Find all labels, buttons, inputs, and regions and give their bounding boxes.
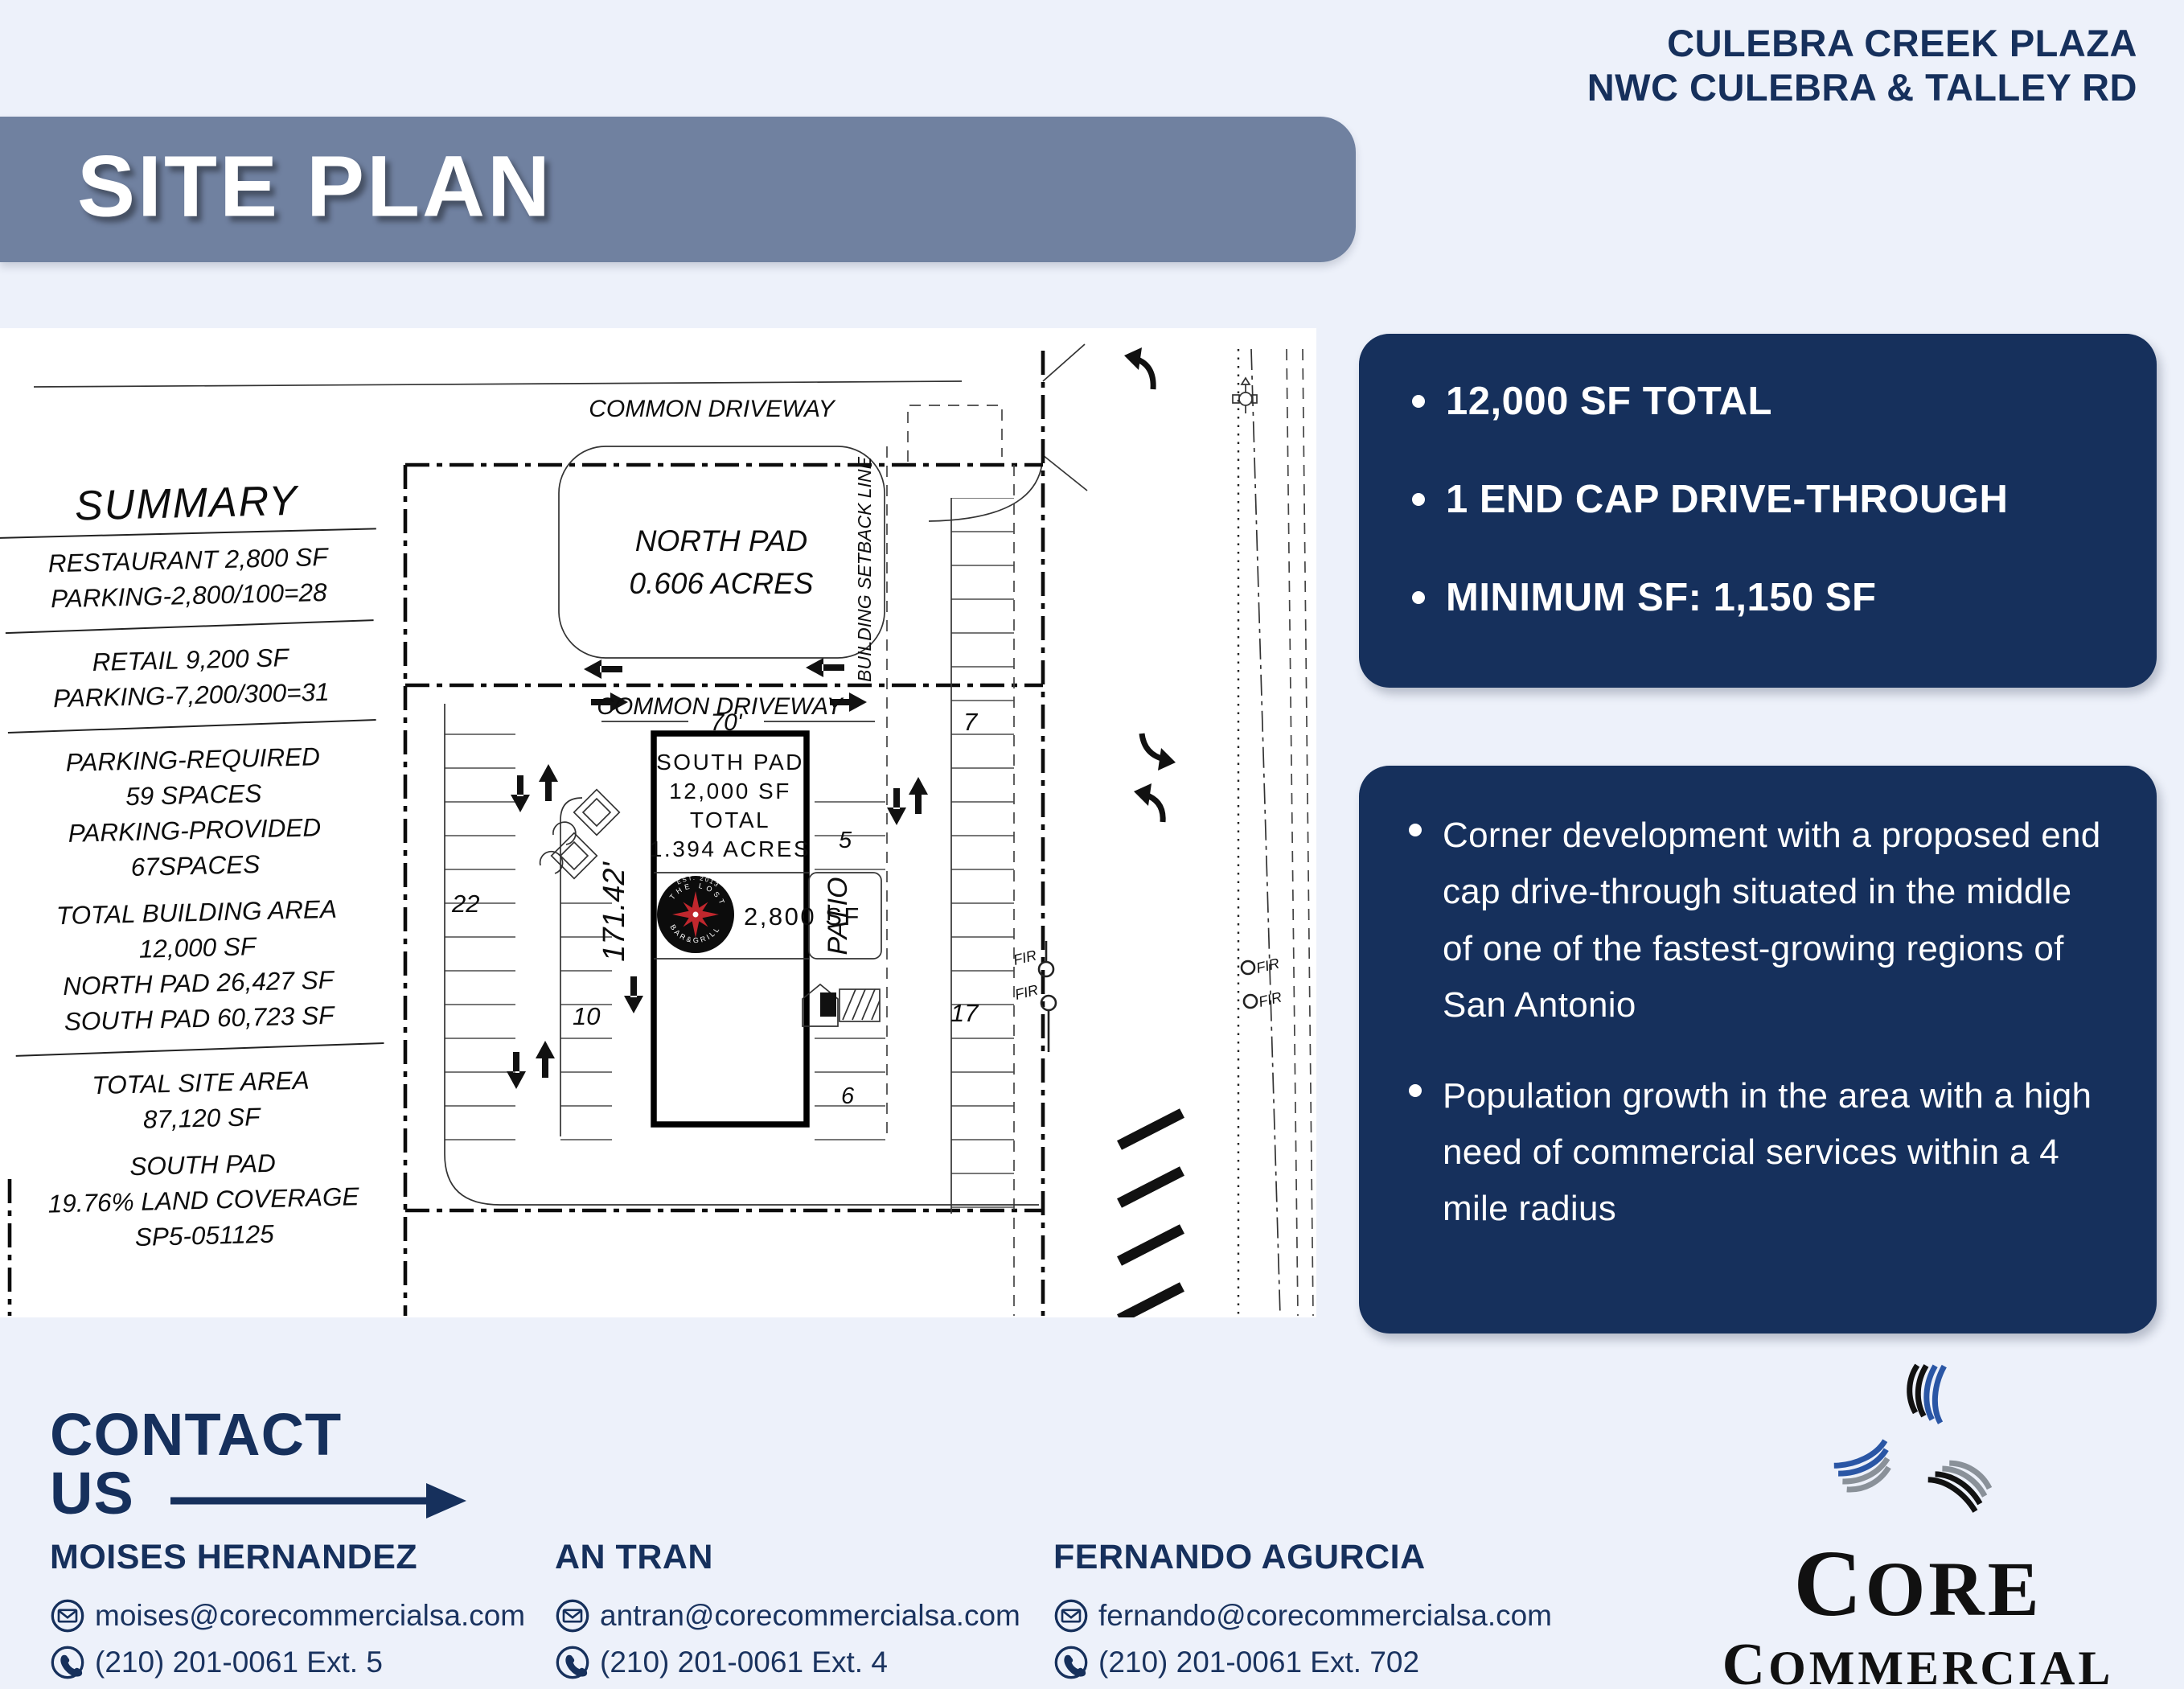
restaurant-sf-label: 2,800 SF xyxy=(744,902,861,931)
contact-person: FERNANDO AGURCIA fernando@corecommercial… xyxy=(1053,1538,1552,1689)
detail-item: Corner development with a proposed end c… xyxy=(1404,808,2112,1034)
highlight-item: 12,000 SF TOTAL xyxy=(1407,379,2108,424)
summary-divider xyxy=(16,1042,384,1057)
summary-divider xyxy=(8,719,376,734)
road-centerline xyxy=(1251,349,1280,1316)
common-driveway-top-label: COMMON DRIVEWAY xyxy=(589,396,836,422)
north-pad-label: NORTH PAD xyxy=(635,524,807,557)
count-22: 22 xyxy=(451,890,479,918)
contact-person: AN TRAN antran@corecommercialsa.com (210… xyxy=(555,1538,1020,1689)
south-pad-l1: SOUTH PAD xyxy=(656,750,804,775)
south-pad-l4: 1.394 ACRES xyxy=(650,836,811,861)
contact-name: FERNANDO AGURCIA xyxy=(1053,1538,1552,1577)
svg-text:FIR: FIR xyxy=(1013,981,1040,1002)
road-lane-lines xyxy=(1287,349,1313,1316)
contact-phone-row[interactable]: (210) 201-0061 Ext. 702 xyxy=(1053,1645,1552,1680)
contact-arrow xyxy=(167,1470,473,1527)
bullet-icon xyxy=(1412,591,1425,604)
bullet-icon xyxy=(1412,395,1425,408)
highlight-item: 1 END CAP DRIVE-THROUGH xyxy=(1407,477,2108,522)
count-10: 10 xyxy=(573,1002,600,1030)
contact-phone-row[interactable]: (210) 201-0061 Ext. 5 xyxy=(50,1645,525,1680)
page-title: SITE PLAN xyxy=(77,135,552,236)
dumpster-enclosure xyxy=(803,984,880,1026)
plan-summary-block: SUMMARY RESTAURANT 2,800 SF PARKING-2,80… xyxy=(0,475,394,1257)
phone-icon xyxy=(555,1645,590,1680)
count-5: 5 xyxy=(839,828,852,853)
contact-email-row[interactable]: fernando@corecommercialsa.com xyxy=(1053,1598,1552,1634)
building-setback-label: BUILDING SETBACK LINE xyxy=(854,456,875,682)
highlights-box: 12,000 SF TOTAL 1 END CAP DRIVE-THROUGH … xyxy=(1359,334,2157,688)
turn-arrows xyxy=(1124,347,1176,822)
site-plan-drawing: COMMON DRIVEWAY NORTH PAD 0.606 ACRES BU… xyxy=(0,328,1316,1317)
contact-phone-row[interactable]: (210) 201-0061 Ext. 4 xyxy=(555,1645,1020,1680)
email-icon xyxy=(1053,1598,1089,1634)
dim-17142-label: 171.42' xyxy=(597,861,631,962)
broker-logo: CORE COMMERCIAL www.corecommercialsa.com xyxy=(1677,1359,2159,1689)
bullet-icon xyxy=(1412,493,1425,506)
south-pad-l2: 12,000 SF xyxy=(669,779,791,803)
bullet-icon xyxy=(1409,824,1422,836)
email-icon xyxy=(555,1598,590,1634)
contact-name: AN TRAN xyxy=(555,1538,1020,1577)
details-box: Corner development with a proposed end c… xyxy=(1359,766,2157,1334)
phone-icon xyxy=(1053,1645,1089,1680)
south-pad-l3: TOTAL xyxy=(690,808,770,832)
contact-name: MOISES HERNANDEZ xyxy=(50,1538,525,1577)
summary-divider xyxy=(6,619,374,634)
svg-text:FIR: FIR xyxy=(1254,955,1281,976)
street-line-top xyxy=(34,381,962,387)
svg-text:FIR: FIR xyxy=(1012,947,1038,968)
highlight-item: MINIMUM SF: 1,150 SF xyxy=(1407,575,2108,620)
detail-item: Population growth in the area with a hig… xyxy=(1404,1068,2112,1238)
contact-email-row[interactable]: moises@corecommercialsa.com xyxy=(50,1598,525,1634)
parking-right-upper xyxy=(815,775,885,873)
property-name: CULEBRA CREEK PLAZA xyxy=(1587,21,2137,65)
parking-left-column xyxy=(445,704,515,1154)
summary-title: SUMMARY xyxy=(0,475,376,538)
parking-east-column xyxy=(951,498,1014,1214)
core-logo-mark xyxy=(1805,1359,2030,1532)
road-median-hatch xyxy=(1119,1113,1182,1317)
count-7: 7 xyxy=(963,708,979,736)
property-location: NWC CULEBRA & TALLEY RD xyxy=(1587,65,2137,109)
curb-bottom xyxy=(445,1154,1039,1205)
easement-dashed-rect xyxy=(908,405,1002,462)
svg-text:FIR: FIR xyxy=(1257,988,1283,1009)
phone-icon xyxy=(50,1645,85,1680)
site-plan-banner: SITE PLAN xyxy=(0,117,1356,262)
fir-monuments: FIR FIR FIR FIR xyxy=(1012,941,1283,1052)
contact-email-row[interactable]: antran@corecommercialsa.com xyxy=(555,1598,1020,1634)
bullet-icon xyxy=(1409,1084,1422,1097)
flyer-page: CULEBRA CREEK PLAZA NWC CULEBRA & TALLEY… xyxy=(0,0,2184,1689)
driveway-flares xyxy=(1043,344,1087,491)
brand-word-core: CORE xyxy=(1677,1536,2159,1631)
email-icon xyxy=(50,1598,85,1634)
brand-word-commercial: COMMERCIAL xyxy=(1677,1631,2159,1689)
contact-person: MOISES HERNANDEZ moises@corecommercialsa… xyxy=(50,1538,525,1689)
north-pad-acres: 0.606 ACRES xyxy=(630,567,814,600)
count-6: 6 xyxy=(841,1083,855,1109)
property-header: CULEBRA CREEK PLAZA NWC CULEBRA & TALLEY… xyxy=(1587,21,2137,110)
count-17: 17 xyxy=(950,999,979,1027)
